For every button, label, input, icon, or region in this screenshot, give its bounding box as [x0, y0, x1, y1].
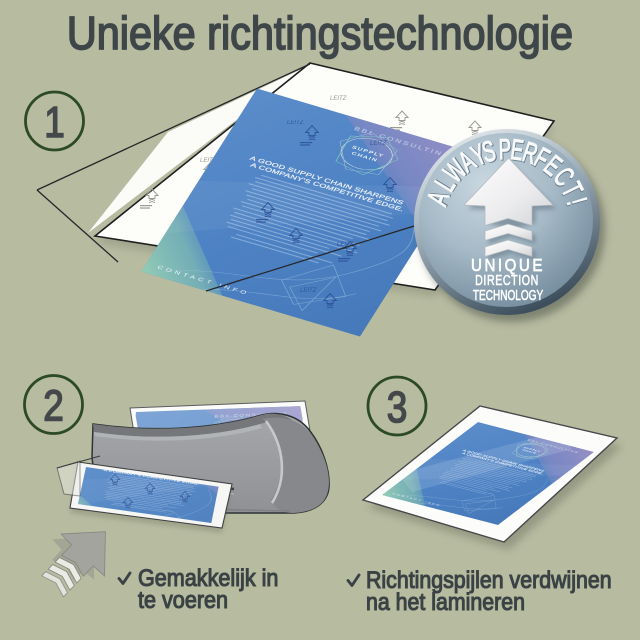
svg-text:LEITZ: LEITZ — [370, 141, 387, 147]
svg-text:2: 2 — [43, 380, 64, 430]
svg-text:TECHNOLOGY: TECHNOLOGY — [473, 286, 544, 304]
svg-text:te voeren: te voeren — [138, 586, 228, 613]
svg-text:LEITZ: LEITZ — [330, 96, 347, 102]
svg-text:Unieke richtingstechnologie: Unieke richtingstechnologie — [67, 8, 573, 60]
svg-text:LEITZ: LEITZ — [300, 288, 317, 294]
svg-text:1: 1 — [44, 97, 65, 147]
svg-text:3: 3 — [387, 382, 408, 432]
svg-text:na het lamineren: na het lamineren — [366, 588, 525, 615]
svg-text:LEITZ: LEITZ — [287, 120, 304, 126]
